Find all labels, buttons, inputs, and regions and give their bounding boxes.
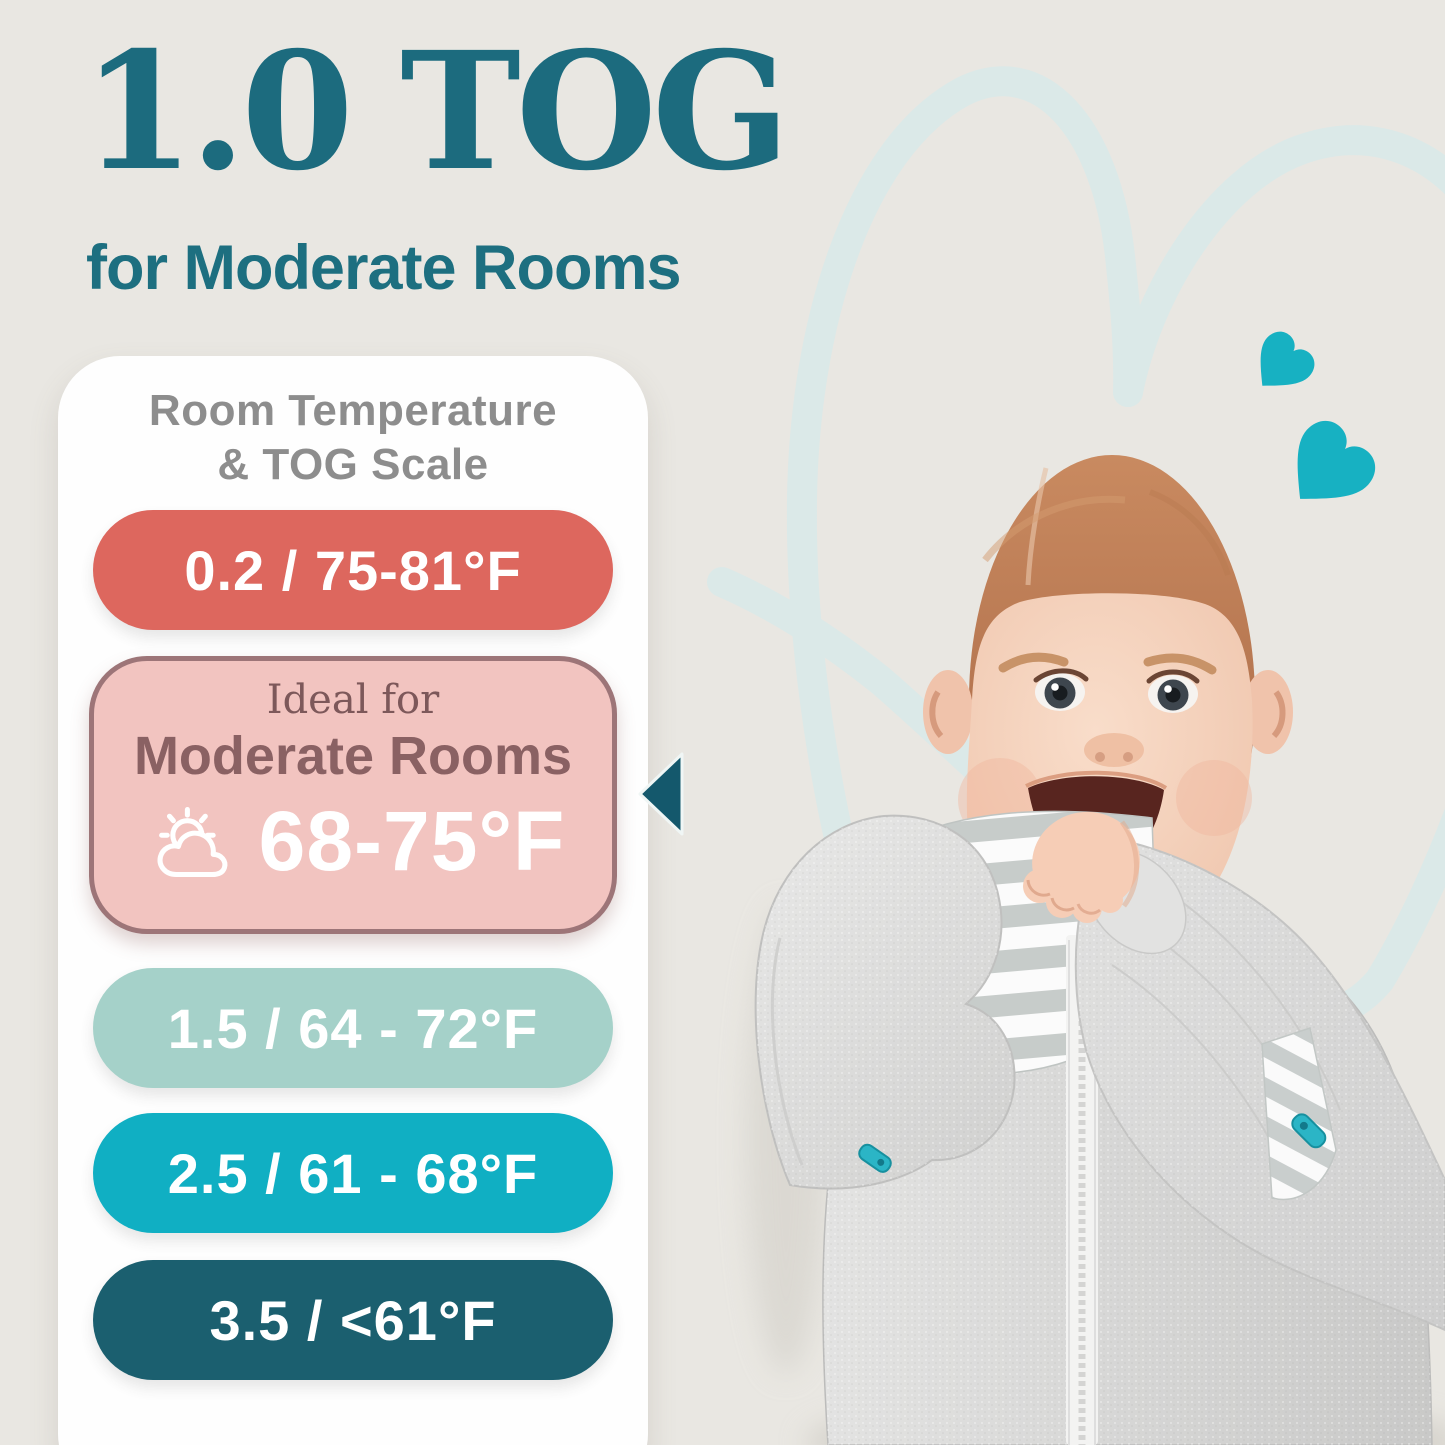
tog-row-0-2: 0.2 / 75-81°F <box>93 510 613 630</box>
tog-row-3-5: 3.5 / <61°F <box>93 1260 613 1380</box>
left-pointer-icon <box>636 750 686 838</box>
tog-row-1-5: 1.5 / 64 - 72°F <box>93 968 613 1088</box>
tog-row-label: 2.5 / 61 - 68°F <box>168 1141 538 1206</box>
ideal-temp-row: 68-75°F <box>141 793 566 890</box>
tog-row-label: 3.5 / <61°F <box>209 1288 496 1353</box>
tog-row-label: 1.5 / 64 - 72°F <box>168 996 538 1061</box>
ideal-temp-label: 68-75°F <box>259 793 566 890</box>
ideal-for-label: Ideal for <box>267 677 439 723</box>
card-heading-line2: & TOG Scale <box>58 438 648 492</box>
tog-row-2-5: 2.5 / 61 - 68°F <box>93 1113 613 1233</box>
room-type-label: Moderate Rooms <box>134 725 572 787</box>
tog-row-label: 0.2 / 75-81°F <box>184 538 521 603</box>
sun-behind-cloud-icon <box>141 805 245 879</box>
card-heading-line1: Room Temperature <box>58 384 648 438</box>
tog-row-1-0-highlight: Ideal for Moderate Rooms <box>89 656 617 934</box>
page-title: 1.0 TOG <box>82 22 785 203</box>
product-infographic: 1.0 TOG for Moderate Rooms Room Temperat… <box>0 0 1445 1445</box>
tog-scale-card: Room Temperature & TOG Scale 0.2 / 75-81… <box>58 356 648 1445</box>
card-heading: Room Temperature & TOG Scale <box>58 384 648 491</box>
page-subtitle: for Moderate Rooms <box>86 232 681 304</box>
